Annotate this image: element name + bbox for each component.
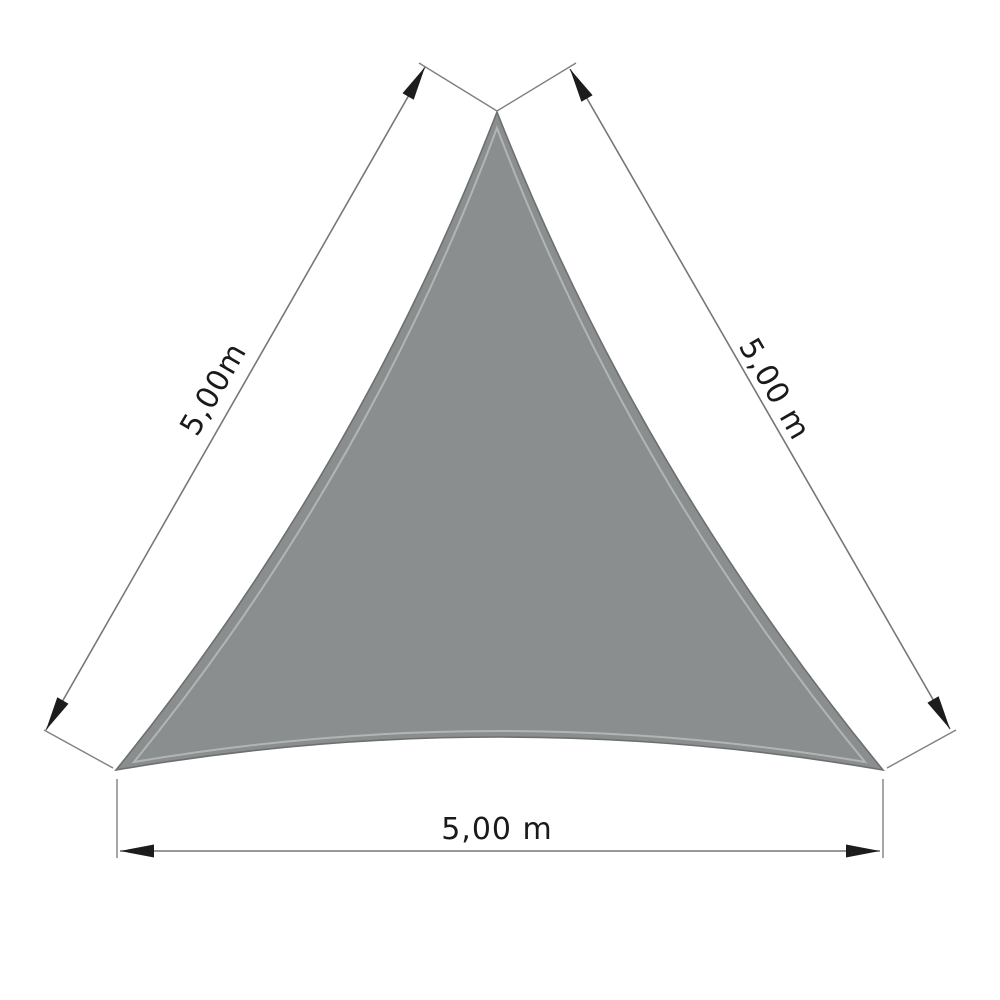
dimension-label-right: 5,00 m (731, 332, 817, 446)
shade-sail-dimension-diagram: 5,00m 5,00 m 5,00 m (0, 0, 1000, 1000)
extension-line-corner-left-diagonal (44, 730, 113, 768)
arrowhead-right-bottom-icon (927, 696, 950, 729)
extension-line-apex-left (419, 63, 497, 111)
arrowhead-left-top-icon (403, 67, 426, 100)
arrowhead-left-bottom-icon (46, 697, 69, 730)
shade-sail-shape (116, 112, 883, 770)
arrowhead-bottom-right-icon (846, 845, 880, 858)
extension-line-apex-right (497, 63, 576, 111)
arrowhead-right-top-icon (570, 69, 593, 102)
extension-line-corner-right-diagonal (887, 730, 956, 768)
arrowhead-bottom-left-icon (120, 845, 154, 858)
dimension-label-left: 5,00m (173, 337, 254, 442)
diagram-canvas: 5,00m 5,00 m 5,00 m (0, 0, 1000, 1000)
dimension-label-bottom: 5,00 m (441, 812, 553, 847)
